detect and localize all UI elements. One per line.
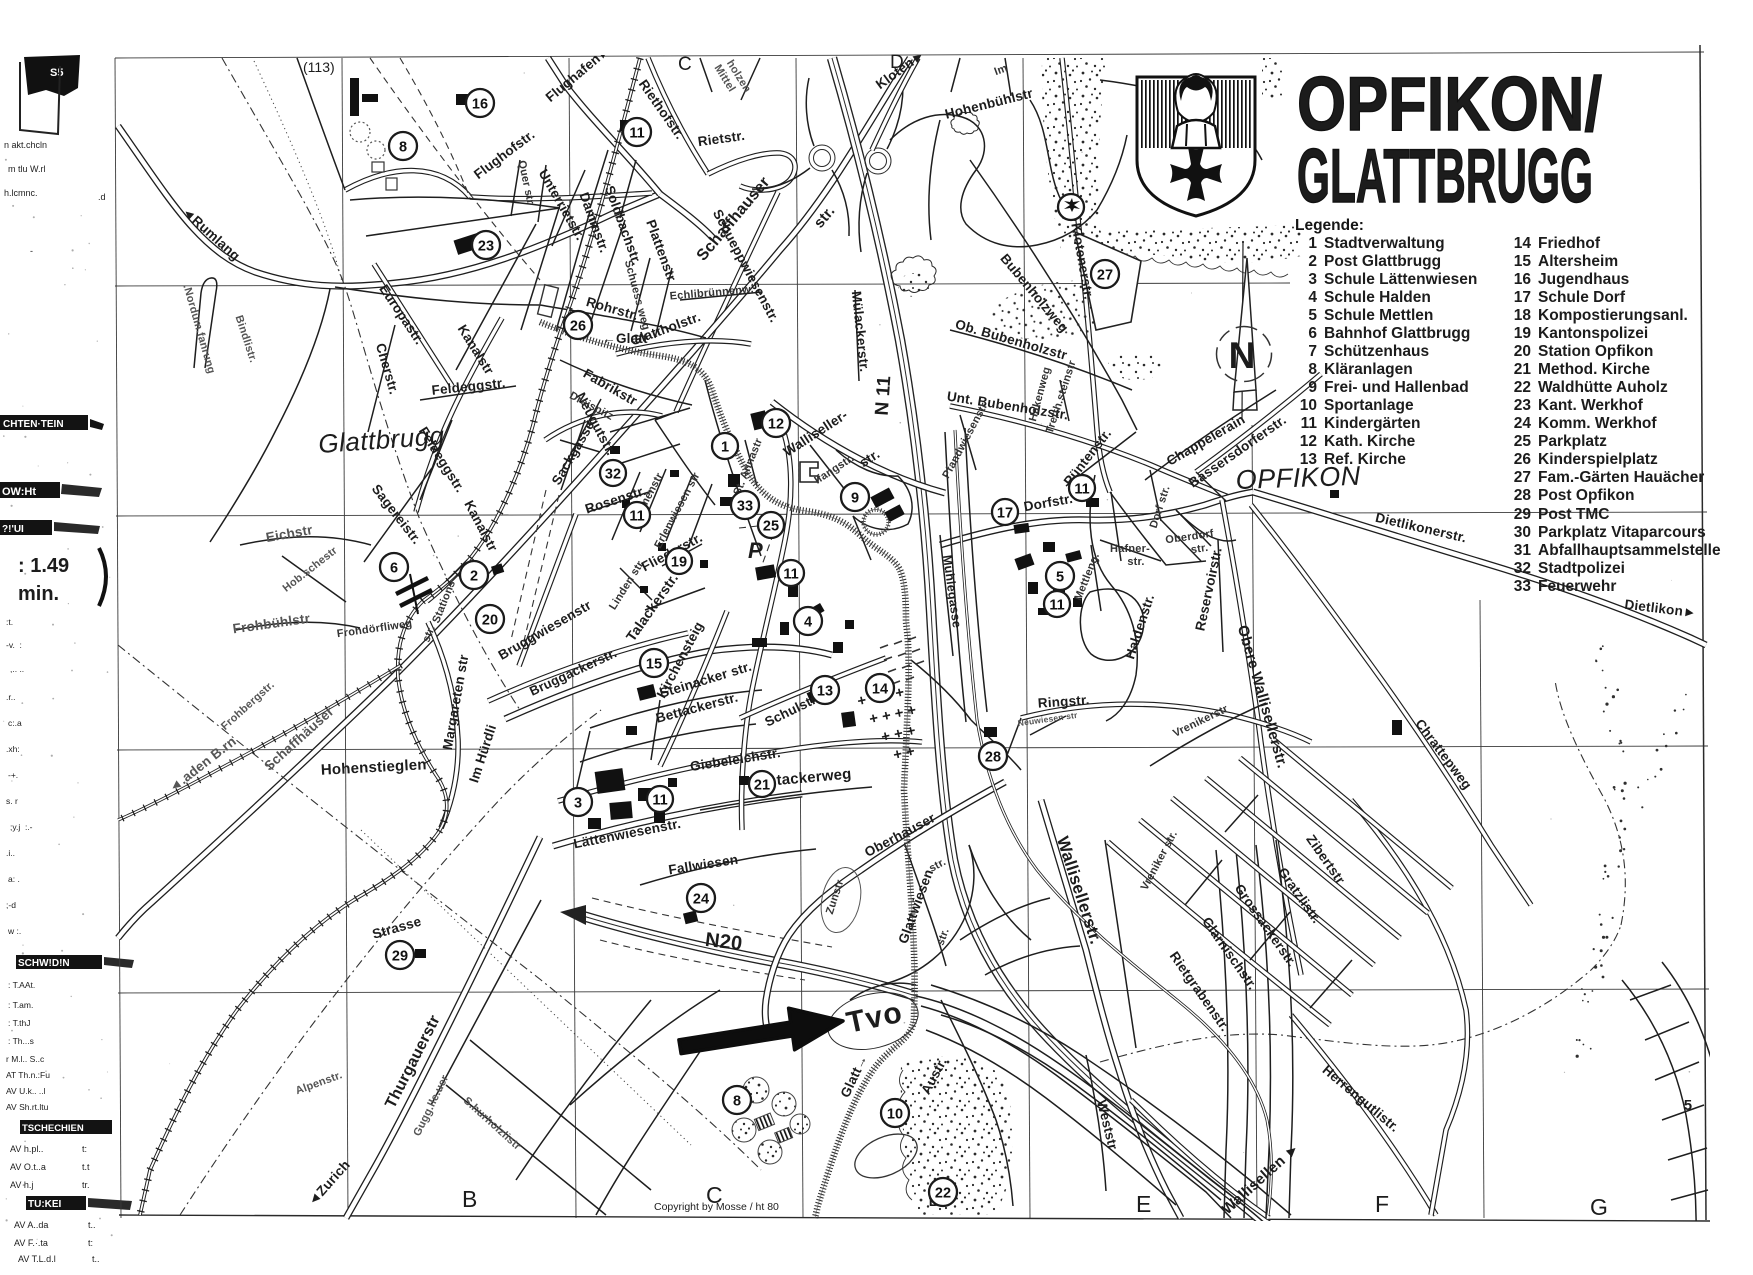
svg-text:n akt.chcln: n akt.chcln — [4, 140, 47, 150]
svg-text:Altersheim: Altersheim — [1538, 253, 1618, 270]
svg-text:F: F — [1375, 1191, 1389, 1217]
svg-text:AV T.L.d.l: AV T.L.d.l — [18, 1254, 56, 1264]
svg-text:.xh:: .xh: — [6, 744, 20, 754]
svg-text:28: 28 — [1514, 487, 1532, 504]
svg-text:AV A..da: AV A..da — [14, 1220, 48, 1230]
svg-text:Stadtpolizei: Stadtpolizei — [1538, 560, 1625, 577]
svg-text:2: 2 — [470, 569, 478, 585]
svg-text:Schule Mettlen: Schule Mettlen — [1324, 307, 1433, 324]
svg-text:14: 14 — [872, 682, 888, 698]
svg-text:w :.: w :. — [7, 926, 21, 936]
svg-text:N: N — [1229, 335, 1256, 376]
svg-text:Fam.-Gärten Hauächer: Fam.-Gärten Hauächer — [1538, 469, 1704, 486]
svg-text:Waldhütte Auholz: Waldhütte Auholz — [1538, 379, 1668, 396]
svg-text:CHTEN·TEIN: CHTEN·TEIN — [3, 419, 64, 430]
svg-text:4: 4 — [1308, 289, 1317, 306]
svg-text:Kant. Werkhof: Kant. Werkhof — [1538, 397, 1644, 414]
svg-text:9: 9 — [1308, 379, 1317, 396]
svg-text:21: 21 — [1514, 361, 1532, 378]
svg-text:26: 26 — [1514, 451, 1532, 468]
svg-text:G: G — [1590, 1194, 1608, 1220]
svg-text:23: 23 — [478, 239, 494, 255]
svg-text:26: 26 — [570, 319, 586, 335]
svg-text:S5: S5 — [50, 67, 63, 79]
svg-text:2: 2 — [1308, 253, 1317, 270]
svg-text:: 1.49: : 1.49 — [18, 555, 69, 577]
svg-text:8: 8 — [1308, 361, 1317, 378]
svg-text:t:: t: — [82, 1144, 87, 1154]
svg-text:33: 33 — [1514, 578, 1532, 595]
svg-text:13: 13 — [817, 684, 833, 700]
svg-text:Schule Lättenwiesen: Schule Lättenwiesen — [1324, 271, 1477, 288]
svg-text:13: 13 — [1300, 451, 1318, 468]
svg-text:?!'UI: ?!'UI — [2, 524, 24, 535]
svg-text:24: 24 — [1514, 415, 1532, 432]
svg-text:Parkplatz Vitaparcours: Parkplatz Vitaparcours — [1538, 524, 1706, 541]
svg-text:Ref. Kirche: Ref. Kirche — [1324, 451, 1406, 468]
svg-text:27: 27 — [1514, 469, 1531, 486]
svg-text:8: 8 — [733, 1094, 741, 1110]
svg-text:Schule Dorf: Schule Dorf — [1538, 289, 1626, 306]
svg-text:Hafner-: Hafner- — [1110, 543, 1150, 555]
svg-text:r M.l.. S..c: r M.l.. S..c — [6, 1054, 45, 1064]
svg-text:16: 16 — [1514, 271, 1532, 288]
svg-text:Kinderspielplatz: Kinderspielplatz — [1538, 451, 1658, 468]
svg-text:11: 11 — [1074, 482, 1089, 498]
svg-text:Copyright by Mosse / ht 80: Copyright by Mosse / ht 80 — [654, 1201, 779, 1213]
svg-text:Legende:: Legende: — [1295, 217, 1364, 234]
svg-text:10: 10 — [887, 1107, 903, 1123]
svg-text:: T.am.: : T.am. — [8, 1000, 33, 1010]
svg-text:-: - — [30, 246, 33, 256]
svg-text:h.lcmnc.: h.lcmnc. — [4, 188, 38, 198]
svg-text:16: 16 — [472, 97, 488, 113]
svg-text:TSCHECHIEN: TSCHECHIEN — [22, 1123, 84, 1134]
svg-text:23: 23 — [1514, 397, 1532, 414]
svg-text:30: 30 — [1514, 524, 1531, 541]
svg-text:32: 32 — [1514, 560, 1531, 577]
svg-text:Kindergärten: Kindergärten — [1324, 415, 1420, 432]
svg-text:;y.j :.-: ;y.j :.- — [10, 822, 33, 832]
svg-text:str.: str. — [1127, 556, 1144, 568]
svg-text:10: 10 — [1300, 397, 1317, 414]
svg-text:.i..: .i.. — [6, 848, 15, 858]
svg-text:5: 5 — [1308, 307, 1317, 324]
svg-text:AV U.k.. ..l: AV U.k.. ..l — [6, 1086, 46, 1096]
svg-text:29: 29 — [1514, 506, 1532, 523]
svg-text:AV O.t..a: AV O.t..a — [10, 1162, 46, 1172]
svg-text:24: 24 — [693, 892, 709, 908]
svg-text:(113): (113) — [303, 59, 335, 75]
svg-text:: T.thJ: : T.thJ — [8, 1018, 31, 1028]
svg-text:Post Opfikon: Post Opfikon — [1538, 487, 1634, 504]
svg-text:Bahnhof Glattbrugg: Bahnhof Glattbrugg — [1324, 325, 1470, 342]
svg-text:25: 25 — [763, 519, 779, 535]
svg-text:AV F.·.ta: AV F.·.ta — [14, 1238, 48, 1248]
svg-text:SCHW!D!N: SCHW!D!N — [18, 958, 70, 969]
svg-text:B: B — [462, 1186, 477, 1212]
svg-text:29: 29 — [392, 949, 408, 965]
svg-text:.r..: .r.. — [6, 692, 15, 702]
svg-text:Schule Halden: Schule Halden — [1324, 289, 1431, 306]
svg-text:TU:KEI: TU:KEI — [28, 1199, 62, 1210]
svg-text:Station Opfikon: Station Opfikon — [1538, 343, 1653, 360]
svg-text:;-d: ;-d — [6, 900, 16, 910]
svg-text:32: 32 — [605, 467, 621, 483]
svg-text:Sportanlage: Sportanlage — [1324, 397, 1414, 414]
svg-text:18: 18 — [1514, 307, 1532, 324]
svg-text:: Th...s: : Th...s — [8, 1036, 34, 1046]
svg-text:12: 12 — [768, 417, 784, 433]
svg-text:17: 17 — [1514, 289, 1531, 306]
svg-text:GLATTBRUGG: GLATTBRUGG — [1297, 134, 1593, 219]
svg-text:Post TMC: Post TMC — [1538, 506, 1609, 523]
svg-text:min.: min. — [18, 583, 59, 605]
svg-text:5: 5 — [1684, 1097, 1693, 1114]
svg-text:11: 11 — [783, 567, 798, 583]
svg-text:15: 15 — [646, 657, 662, 673]
svg-text:20: 20 — [482, 613, 498, 629]
svg-text:6: 6 — [390, 561, 398, 577]
svg-text:11: 11 — [1049, 598, 1064, 614]
svg-text:21: 21 — [754, 778, 770, 794]
svg-text:AV Sh.rt.ltu: AV Sh.rt.ltu — [6, 1102, 49, 1112]
svg-text:Abfallhauptsammelstelle: Abfallhauptsammelstelle — [1538, 542, 1721, 559]
svg-text:17: 17 — [997, 506, 1013, 522]
svg-text:4: 4 — [804, 615, 812, 631]
svg-text:Frei- und Hallenbad: Frei- und Hallenbad — [1324, 379, 1469, 396]
svg-text:19: 19 — [1514, 325, 1532, 342]
svg-text:OW:Ht: OW:Ht — [2, 486, 36, 498]
svg-text:20: 20 — [1514, 343, 1531, 360]
svg-text:-v. :: -v. : — [6, 640, 22, 650]
svg-text:Friedhof: Friedhof — [1538, 235, 1601, 252]
svg-text:c:.a: c:.a — [8, 718, 22, 728]
svg-text:31: 31 — [1514, 542, 1532, 559]
svg-text:3: 3 — [574, 796, 582, 812]
svg-text:Kläranlagen: Kläranlagen — [1324, 361, 1413, 378]
svg-text:Method. Kirche: Method. Kirche — [1538, 361, 1650, 378]
svg-text:Komm. Werkhof: Komm. Werkhof — [1538, 415, 1657, 432]
svg-text:1: 1 — [721, 440, 729, 456]
svg-text:9: 9 — [851, 491, 859, 507]
svg-text:AT Th.n.:Fu: AT Th.n.:Fu — [6, 1070, 50, 1080]
svg-text:7: 7 — [1308, 343, 1317, 360]
svg-text:AV h.pl..: AV h.pl.. — [10, 1144, 43, 1154]
svg-text:m tlu W.rl: m tlu W.rl — [8, 164, 46, 174]
svg-text:P: P — [748, 538, 763, 563]
svg-text:: T.AAt.: : T.AAt. — [8, 980, 35, 990]
svg-text:14: 14 — [1514, 235, 1532, 252]
svg-text:1: 1 — [1308, 235, 1317, 252]
svg-text:12: 12 — [1300, 433, 1317, 450]
svg-text:N20: N20 — [704, 929, 744, 955]
svg-text:Kath. Kirche: Kath. Kirche — [1324, 433, 1416, 450]
svg-text:.d: .d — [98, 192, 106, 202]
svg-text:Feuerwehr: Feuerwehr — [1538, 578, 1616, 595]
svg-text:Schützenhaus: Schützenhaus — [1324, 343, 1429, 360]
svg-text:11: 11 — [629, 509, 644, 525]
svg-text:28: 28 — [985, 750, 1001, 766]
svg-text:,.. ..: ,.. .. — [10, 664, 24, 674]
svg-text:3: 3 — [1308, 271, 1317, 288]
svg-text:E: E — [1136, 1191, 1151, 1217]
svg-text:11: 11 — [652, 793, 667, 809]
svg-text:8: 8 — [399, 140, 407, 156]
svg-text:t..: t.. — [88, 1220, 96, 1230]
svg-text:22: 22 — [935, 1186, 951, 1202]
svg-text:str.: str. — [1190, 542, 1209, 556]
svg-text:tr.: tr. — [82, 1180, 90, 1190]
svg-text:t.t: t.t — [82, 1162, 90, 1172]
svg-text:Stadtverwaltung: Stadtverwaltung — [1324, 235, 1445, 252]
svg-text:19: 19 — [671, 555, 687, 571]
svg-text:t:: t: — [88, 1238, 93, 1248]
svg-text:Jugendhaus: Jugendhaus — [1538, 271, 1629, 288]
svg-text:C: C — [678, 54, 692, 75]
svg-text:22: 22 — [1514, 379, 1531, 396]
svg-text:s. r: s. r — [6, 796, 18, 806]
svg-text::t.: :t. — [6, 617, 13, 627]
svg-text:25: 25 — [1514, 433, 1532, 450]
svg-text:11: 11 — [1301, 415, 1318, 432]
svg-text:Kompostierungsanl.: Kompostierungsanl. — [1538, 307, 1688, 324]
svg-text:5: 5 — [1056, 570, 1064, 586]
svg-text:a: .: a: . — [8, 874, 20, 884]
svg-text:33: 33 — [737, 499, 753, 515]
svg-text:11: 11 — [629, 126, 644, 142]
svg-text:t..: t.. — [92, 1254, 100, 1264]
svg-text:Post Glattbrugg: Post Glattbrugg — [1324, 253, 1441, 270]
svg-text:Kantonspolizei: Kantonspolizei — [1538, 325, 1648, 342]
svg-text:-+.: -+. — [8, 770, 18, 780]
svg-text:AV h.j: AV h.j — [10, 1180, 33, 1190]
svg-text:Parkplatz: Parkplatz — [1538, 433, 1607, 450]
svg-text:15: 15 — [1514, 253, 1532, 270]
svg-text:N 11: N 11 — [872, 375, 896, 416]
svg-text:27: 27 — [1097, 268, 1113, 284]
svg-text:6: 6 — [1308, 325, 1317, 342]
